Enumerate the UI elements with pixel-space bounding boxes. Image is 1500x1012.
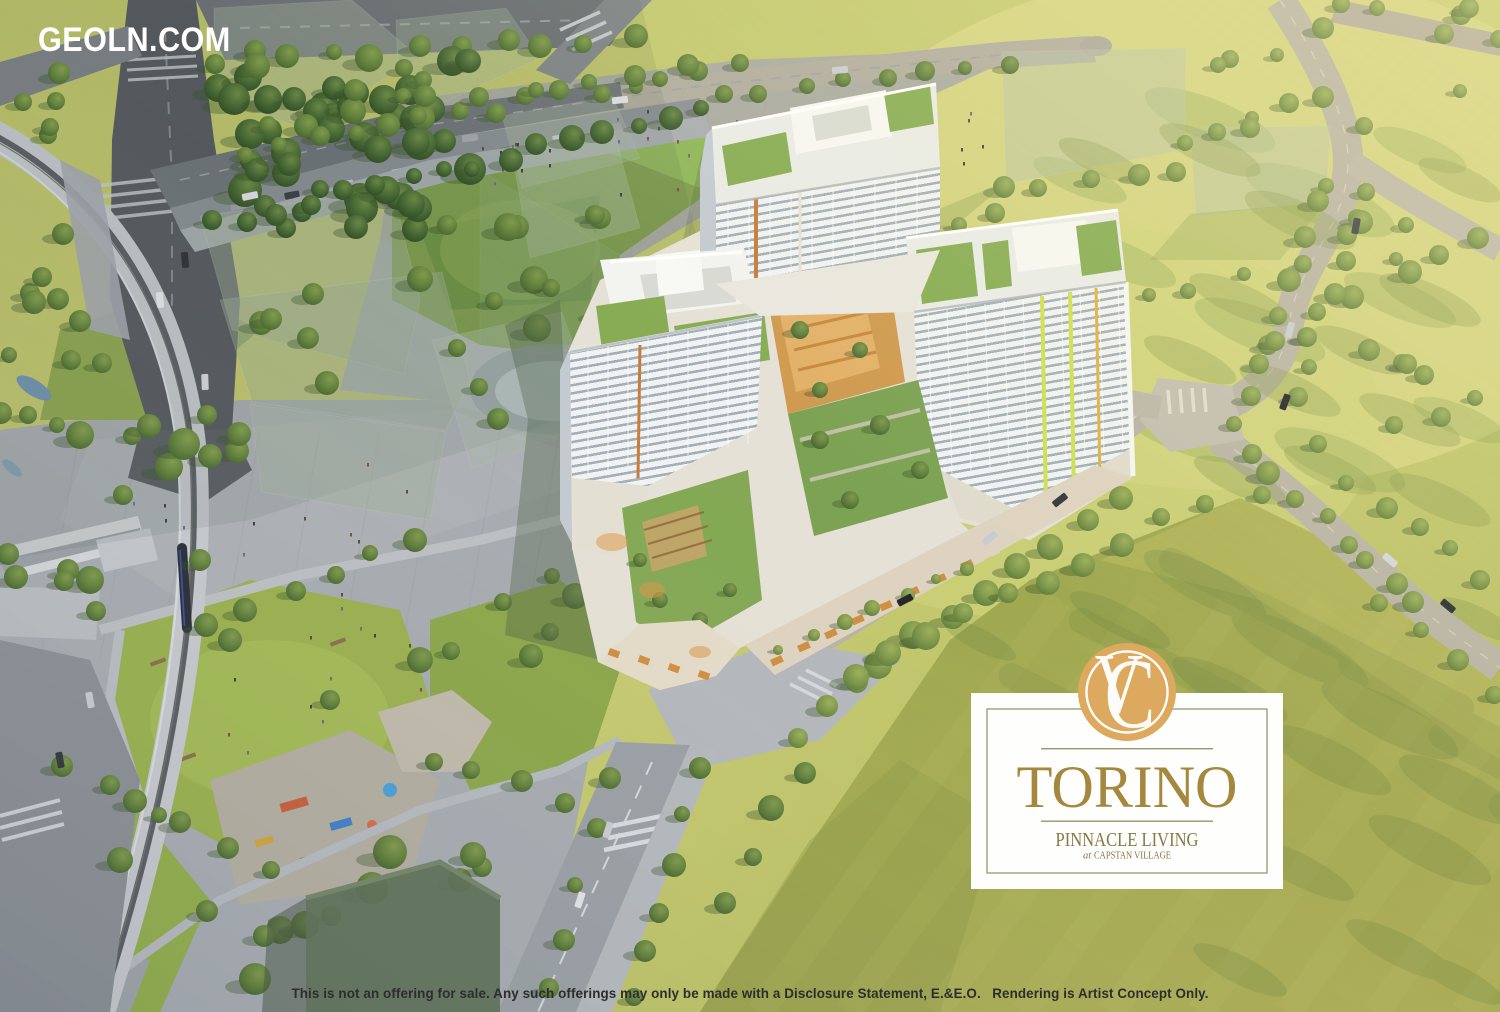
svg-text:at: at: [1083, 851, 1092, 862]
svg-text:V: V: [1095, 635, 1143, 731]
svg-text:CAPSTAN VILLAGE: CAPSTAN VILLAGE: [1094, 851, 1171, 862]
svg-text:PINNACLE LIVING: PINNACLE LIVING: [1056, 829, 1199, 851]
svg-text:TORINO: TORINO: [1017, 754, 1238, 820]
